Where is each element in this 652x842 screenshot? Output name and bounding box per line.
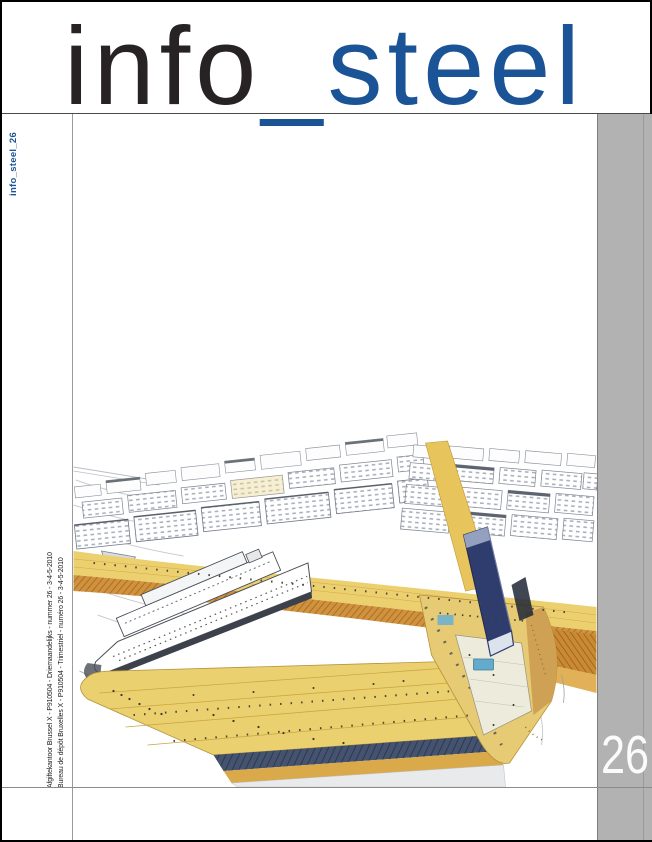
magazine-cover: info_steel info_steel_26 Afgiftekantoor … [0, 0, 652, 842]
title-steel: _steel [261, 5, 585, 128]
masthead-divider [0, 113, 652, 114]
imprint-line-nl: Afgiftekantoor Brussel X - P910504 - Dri… [46, 526, 57, 788]
main-pier [81, 661, 506, 787]
imprint-text: Afgiftekantoor Brussel X - P910504 - Dri… [46, 526, 67, 788]
city-blocks-left [73, 432, 431, 549]
bottom-divider [0, 787, 652, 788]
title-info: info [64, 5, 261, 128]
cover-illustration [73, 115, 597, 787]
imprint-line-fr: Bureau de dépôt Bruxelles X - P910504 - … [57, 526, 68, 788]
spine-label: info_steel_26 [8, 132, 19, 196]
left-border [0, 0, 2, 842]
issue-number: 26 [601, 728, 649, 782]
top-border [0, 0, 652, 2]
magazine-title: info_steel [64, 12, 585, 122]
left-column-divider [72, 114, 73, 840]
masthead: info_steel [0, 0, 652, 113]
issue-band: 26 [597, 114, 652, 842]
